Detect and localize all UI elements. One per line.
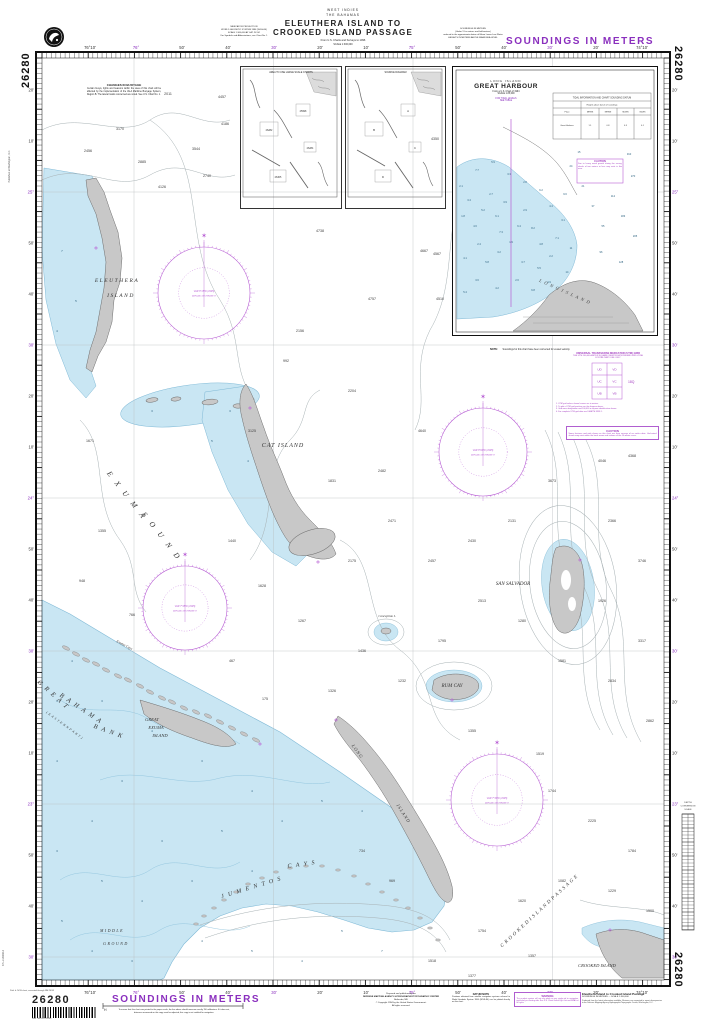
- cay: [274, 871, 279, 873]
- chart-number-top-left: 26280: [20, 48, 32, 88]
- sounding: 1926: [598, 599, 606, 603]
- lon-label: 75°: [409, 45, 416, 50]
- sounding: 3544: [192, 147, 200, 151]
- sounding: 3673: [548, 479, 556, 483]
- compass-rose: ✶VAR 8°00'W (1995)ANNUAL DECREASE 8': [434, 393, 532, 501]
- lat-label: 40': [672, 598, 678, 603]
- rose-tick: [244, 316, 247, 318]
- inset-sounding: 1.8: [461, 214, 465, 218]
- sounding: 2471: [388, 519, 396, 523]
- inset-sounding: 4.6: [473, 224, 477, 228]
- cay: [428, 927, 433, 929]
- rose-tick: [154, 638, 155, 639]
- rose-annual-change: ANNUAL DECREASE 8': [191, 295, 216, 298]
- rose-tick: [463, 766, 464, 767]
- rose-variation: VAR 8°15'W (1995): [194, 290, 215, 293]
- caution-box: CAUTION Some features and aids shown on …: [566, 426, 659, 440]
- rose-tick: [514, 483, 515, 484]
- map-label: C R O O K E D I S L A N D P A S S A G E: [500, 874, 579, 949]
- soundings-banner-bottom: SOUNDINGS IN METERS: [112, 994, 260, 1005]
- rose-tick: [445, 477, 446, 478]
- map-label: RUM CAY: [441, 684, 464, 689]
- sounding: 4738: [316, 229, 324, 233]
- inset-sounding: 2.8: [523, 180, 527, 184]
- map-label: ELEUTHERA: [94, 278, 139, 284]
- rose-tick: [212, 640, 213, 641]
- tide-table-col: MHWS: [587, 112, 594, 114]
- utm-cell: UB: [597, 392, 601, 396]
- inset-caution: CAUTION Due to heavy weed growth during …: [578, 160, 622, 171]
- inset-sounding: 7.3: [499, 230, 503, 234]
- rose-tick: [451, 420, 452, 421]
- sounding: 992: [283, 359, 289, 363]
- rose-tick: [188, 248, 189, 250]
- utm-line3: FOR MILITARY USE ONLY: [556, 357, 660, 359]
- buoyage-note-body: Certain buoys, lights and beacons within…: [87, 88, 161, 97]
- lat-label: 10': [29, 139, 35, 144]
- lat-label: 50': [29, 853, 35, 858]
- rose-tick: [508, 488, 509, 489]
- rose-tick: [223, 250, 224, 252]
- tide-table-col: MLWN: [623, 112, 630, 114]
- inset-sounding: 3.9: [503, 200, 507, 204]
- rose-tick: [145, 626, 147, 627]
- rose-tick: [457, 488, 458, 489]
- inset-sounding: 2.4: [477, 242, 481, 246]
- rose-tick: [535, 826, 536, 827]
- inset-sounding: 3.4: [467, 198, 471, 202]
- rose-tick: [532, 830, 533, 831]
- rose-tick: [521, 474, 524, 476]
- sounding: 5: [251, 949, 253, 953]
- rose-tick: [246, 273, 248, 274]
- tide-table-cell: Great Harbour: [560, 124, 574, 127]
- rose-tick: [160, 642, 161, 643]
- sounding: 2011: [164, 92, 172, 96]
- rose-tick: [223, 626, 225, 627]
- inset-name: GREAT HARBOUR: [461, 83, 551, 90]
- sounding: 1500: [646, 909, 654, 913]
- lon-label: 40': [225, 45, 231, 50]
- lat-label: 25°: [28, 190, 35, 195]
- lat-label: 30': [672, 649, 678, 654]
- rose-tick: [517, 480, 518, 481]
- sounding: 2366: [608, 519, 616, 523]
- map-label: MIDDLE: [99, 928, 124, 933]
- sounding: 3125: [248, 429, 256, 433]
- inset-sounding: 21: [582, 184, 585, 188]
- cay: [320, 865, 325, 867]
- sounding: 1082: [558, 879, 566, 883]
- rose-tick: [537, 775, 540, 777]
- utm-footnote: 4. For complete UTM grid data see DMA TM…: [556, 411, 660, 414]
- title-region: WEST INDIES: [243, 8, 443, 12]
- rose-north-star: ✶: [480, 393, 486, 401]
- rose-tick: [454, 486, 455, 487]
- rose-tick: [157, 640, 158, 641]
- sounding: 1440: [228, 539, 236, 543]
- sounding: 1326: [328, 689, 336, 693]
- inset-sounding: 8.2: [531, 226, 535, 230]
- rose-tick: [498, 409, 499, 411]
- rose-tick: [199, 567, 200, 569]
- lat-label: 20': [672, 88, 678, 93]
- sounding: 2204: [348, 389, 356, 393]
- inset-sounding: 5.5: [537, 266, 541, 270]
- inset-sounding: 270: [631, 174, 636, 178]
- rose-tick: [146, 585, 149, 587]
- rose-tick: [502, 410, 503, 412]
- rose-tick: [162, 644, 164, 647]
- rose-tick: [467, 409, 468, 411]
- sounding: 3746: [638, 559, 646, 563]
- rose-tick: [221, 585, 224, 587]
- rose-tick: [464, 410, 465, 412]
- rose-tick: [179, 333, 181, 336]
- chart-number-top-right: 26280: [672, 46, 684, 86]
- rose-tick: [524, 436, 526, 437]
- stock-number: NSN 7642014176280: [32, 1018, 51, 1020]
- inset-sounding: 3.6: [475, 278, 479, 282]
- lat-label: 10': [672, 139, 678, 144]
- rose-tick: [188, 336, 189, 338]
- sounding: 4: [201, 939, 203, 943]
- rose-tick: [463, 833, 464, 834]
- great-harbour-inset-canvas: TIDAL INFORMATION AND CHART SOUNDING DAT…: [453, 67, 657, 335]
- cay: [352, 875, 357, 877]
- rose-tick: [151, 580, 152, 581]
- rose-annual-change: ANNUAL DECREASE 8': [484, 802, 509, 805]
- sounding: 1628: [258, 584, 266, 588]
- map-label: CROOKED ISLAND: [578, 963, 616, 968]
- rose-tick: [166, 568, 167, 570]
- rose-tick: [511, 486, 512, 487]
- inset-sounding: 2.9: [523, 208, 527, 212]
- lat-label: 30': [29, 343, 35, 348]
- inset-sounding: 3.3: [507, 172, 511, 176]
- rose-tick: [227, 250, 229, 253]
- sounding: 1754: [478, 929, 486, 933]
- rose-tick: [170, 567, 171, 569]
- rose-tick: [467, 493, 468, 495]
- depth-scale-title: DEPTH: [684, 802, 692, 804]
- chart-title-line2: CROOKED ISLAND PASSAGE: [243, 28, 443, 37]
- lon-label: 30': [271, 990, 277, 995]
- rose-tick: [481, 755, 482, 757]
- rose-tick: [220, 336, 221, 338]
- gh-note-body: Soundings for this chart have been corre…: [502, 348, 570, 351]
- rose-tick: [505, 490, 507, 493]
- rose-tick: [217, 580, 218, 581]
- sounding: 4186: [221, 122, 229, 126]
- rose-tick: [470, 838, 471, 839]
- rose-tick: [517, 423, 518, 424]
- lon-label: 30': [271, 45, 277, 50]
- sounding: 1519: [536, 752, 544, 756]
- sounding: 4126: [158, 185, 166, 189]
- rose-tick: [454, 823, 457, 825]
- tide-table-col: Place: [564, 112, 570, 114]
- map-label: SAN SALVADOR: [496, 582, 530, 587]
- inset-sounding: 4.1: [463, 256, 467, 260]
- rose-tick: [445, 426, 446, 427]
- footer-title-block: Eleuthera Island to Crooked Island Passa…: [582, 992, 662, 1005]
- inset-sounding: 4.8: [539, 242, 543, 246]
- sounding: 7: [381, 949, 383, 953]
- rose-tick: [219, 583, 220, 584]
- rose-tick: [144, 593, 146, 594]
- rose-tick: [212, 574, 213, 575]
- rose-tick: [459, 411, 461, 414]
- sounding: 1831: [328, 479, 336, 483]
- sounding: 1671: [86, 439, 94, 443]
- tide-table-col: MLWS: [640, 112, 647, 114]
- compass-rose: ✶VAR 7°45'W (1995)ANNUAL DECREASE 8': [138, 551, 232, 655]
- map-label: GREAT: [145, 717, 159, 722]
- rose-tick: [224, 622, 226, 623]
- rose-tick: [458, 826, 459, 827]
- inset-sounding: 4.4: [549, 204, 553, 208]
- rose-tick: [459, 490, 461, 493]
- sounding: 1744: [548, 789, 556, 793]
- sounding: 467: [229, 659, 235, 663]
- rose-tick: [508, 414, 509, 415]
- cay: [212, 907, 217, 909]
- tide-table-col: MHWN: [605, 112, 612, 114]
- rose-tick: [224, 593, 226, 594]
- sounding: 1280: [518, 619, 526, 623]
- inset-sounding: 2.2: [549, 254, 553, 258]
- sounding: 2862: [646, 719, 654, 723]
- rose-tick: [477, 842, 478, 844]
- rose-tick: [523, 433, 525, 434]
- rose-tick: [242, 319, 243, 320]
- rose-tick: [145, 589, 147, 590]
- lat-label: 50': [29, 241, 35, 246]
- inset-sounding: 5.4: [463, 290, 467, 294]
- rose-tick: [217, 635, 218, 636]
- cay: [418, 917, 423, 919]
- inset-sounding: 5.8: [485, 260, 489, 264]
- utm-cell: VC: [612, 380, 617, 384]
- sounding: 3317: [638, 639, 646, 643]
- rose-tick: [454, 417, 455, 418]
- rose-tick: [513, 755, 514, 757]
- tide-table-title: TIDAL INFORMATION AND CHART SOUNDING DAT…: [573, 97, 632, 100]
- sounding: 175: [262, 697, 268, 701]
- rose-tick: [227, 333, 229, 336]
- rose-tick: [458, 773, 459, 774]
- rose-tick: [472, 840, 474, 843]
- sounding: 4: [301, 959, 303, 963]
- sounding: 1232: [398, 679, 406, 683]
- lat-label: 40': [29, 904, 35, 909]
- tide-table-cell: 1.1: [589, 125, 593, 127]
- soundings-note-line: HEIGHTS IN METERS ABOVE MEAN SEA LEVEL: [437, 37, 509, 40]
- lon-label: 50': [455, 45, 461, 50]
- rose-tick: [466, 763, 467, 764]
- rose-tick: [170, 259, 171, 260]
- lat-label: 30': [29, 649, 35, 654]
- rose-tick: [237, 259, 238, 260]
- sounding: 766: [129, 613, 135, 617]
- compass-rose: ✶VAR 8°15'W (1995)ANNUAL DECREASE 8': [153, 232, 255, 344]
- rose-tick: [440, 436, 442, 437]
- sounding: 969: [389, 879, 395, 883]
- rose-tick: [159, 309, 161, 310]
- rose-tick: [505, 411, 507, 414]
- rose-tick: [223, 589, 225, 590]
- inset-sounding: 5.9: [491, 160, 495, 164]
- inset-sounding: 4.2: [495, 286, 499, 290]
- inset-mag-note2: SEE TABLE: [461, 100, 551, 102]
- rose-north-star: ✶: [201, 232, 207, 240]
- lat-label: 10': [672, 751, 678, 756]
- barcode: [32, 1007, 96, 1018]
- sounding: 1518: [428, 959, 436, 963]
- nautical-chart-sheet: 2011317024562885354441264186274044574738…: [0, 0, 707, 1024]
- rose-variation: VAR 7°45'W (1995): [175, 605, 196, 608]
- inset-sounding: 24: [570, 164, 573, 168]
- rose-tick: [177, 331, 178, 332]
- utm-cell: VD: [612, 368, 617, 372]
- footer-chart-subtitle: SOUNDINGS IN METERS — SCALE 1:300,000: [582, 996, 662, 998]
- sounding: 2131: [508, 519, 516, 523]
- rose-tick: [472, 757, 474, 760]
- inset-sounding: 6.8: [531, 288, 535, 292]
- rose-tick: [523, 471, 525, 472]
- rose-tick: [173, 328, 174, 329]
- rose-tick: [441, 471, 443, 472]
- inset-sounding: 6.1: [495, 214, 499, 218]
- rose-tick: [502, 492, 503, 494]
- inset-sounding: 7.1: [555, 236, 559, 240]
- rose-tick: [165, 319, 166, 320]
- rose-tick: [151, 635, 152, 636]
- rose-tick: [452, 784, 454, 785]
- depth-scale-title: SCALE: [684, 808, 692, 811]
- footer-print-note: Prtd. fr. NOS chart, corrected through N…: [10, 990, 54, 992]
- rose-tick: [170, 326, 171, 327]
- title-country: THE BAHAMAS: [243, 13, 443, 17]
- cay: [202, 915, 207, 917]
- sounding: 1229: [608, 889, 616, 893]
- rose-tick: [460, 769, 461, 770]
- rose-tick: [498, 493, 499, 495]
- map-label: Conception I.: [378, 614, 396, 618]
- index-inset-left: AREA TO USE LARGE SCALE CHARTS: [240, 66, 342, 209]
- sounding: 4640: [418, 429, 426, 433]
- sounding: 734: [359, 849, 365, 853]
- inset-sounding: 1.9: [509, 240, 513, 244]
- inset-sounding: 205: [633, 234, 638, 238]
- rose-tick: [520, 840, 522, 843]
- rose-tick: [519, 477, 520, 478]
- left-edge-note: Published at Washington, D.C.: [8, 150, 11, 182]
- soundings-banner-top: SOUNDINGS IN METERS: [506, 36, 654, 47]
- rose-tick: [540, 816, 542, 817]
- rose-tick: [215, 638, 216, 639]
- rose-tick: [442, 474, 445, 476]
- sounding: 2513: [478, 599, 486, 603]
- sounding: 1267: [298, 619, 306, 623]
- rose-tick: [242, 266, 243, 267]
- sounding: 1377: [468, 974, 476, 978]
- lon-label: 20': [317, 990, 323, 995]
- rose-tick: [530, 833, 531, 834]
- map-label: S O U N D: [140, 510, 184, 562]
- inset-sounding: 6.2: [539, 188, 543, 192]
- rose-tick: [234, 328, 235, 329]
- rose-tick: [160, 572, 161, 573]
- lat-label: 40': [29, 292, 35, 297]
- lon-label: 50': [179, 45, 185, 50]
- rose-tick: [519, 426, 520, 427]
- warning-box: WARNING The prudent mariner will not rel…: [514, 992, 581, 1007]
- rose-tick: [532, 769, 533, 770]
- inset-title-block: LONG ISLAND GREAT HARBOUR From a U.S. Ch…: [461, 79, 551, 102]
- lat-label: 50': [672, 241, 678, 246]
- sounding: 4457: [218, 95, 226, 99]
- inset-sounding: 96: [600, 250, 603, 254]
- sounding: 1581: [558, 659, 566, 663]
- rose-tick: [219, 632, 220, 633]
- lat-label: 40': [672, 292, 678, 297]
- inset-sounding: 3.2: [497, 250, 501, 254]
- publisher-block: Prepared and published by the DEFENSE MA…: [330, 993, 472, 1008]
- rose-north-star: ✶: [494, 739, 500, 747]
- index-inset-right: SOURCE DIAGRAM: [345, 66, 446, 209]
- sounding: 2175: [348, 559, 356, 563]
- buoyage-note-title: CHANGES IN BUOYAGE: [87, 83, 161, 87]
- inset-sounding: 2.1: [459, 184, 463, 188]
- rose-tick: [209, 572, 210, 573]
- rose-tick: [184, 250, 185, 252]
- lat-label: 50': [29, 547, 35, 552]
- rose-tick: [230, 331, 231, 332]
- rose-tick: [162, 569, 164, 572]
- cay: [380, 891, 385, 893]
- cay: [336, 869, 341, 871]
- rose-tick: [466, 835, 467, 836]
- lat-label: 25°: [672, 190, 679, 195]
- utm-zone-label: 18Q: [628, 380, 635, 384]
- cay: [260, 877, 265, 879]
- map-label: ISLAND: [106, 293, 135, 299]
- utm-cell: UD: [597, 368, 602, 372]
- rose-tick: [513, 843, 514, 845]
- lat-label: 30': [672, 343, 678, 348]
- compass-rose: ✶VAR 7°30'W (1995)ANNUAL DECREASE 8': [446, 739, 548, 851]
- sounding: 2740: [203, 174, 211, 178]
- sounding: 2156: [296, 329, 304, 333]
- rose-tick: [452, 816, 454, 817]
- sounding: 5: [341, 929, 343, 933]
- map-label: CAT ISLAND: [262, 443, 305, 449]
- sounding: 1357: [528, 954, 536, 958]
- rose-tick: [537, 823, 540, 825]
- inset-sounding: 310: [627, 152, 632, 156]
- sounding: 1784: [628, 849, 636, 853]
- sounding: 1795: [438, 639, 446, 643]
- rose-tick: [516, 757, 517, 759]
- rose-tick: [203, 568, 204, 570]
- sounding: 2834: [608, 679, 616, 683]
- rose-tick: [523, 838, 524, 839]
- rose-annual-change: ANNUAL DECREASE 8': [470, 454, 495, 457]
- rose-tick: [521, 428, 524, 430]
- rose-tick: [448, 423, 449, 424]
